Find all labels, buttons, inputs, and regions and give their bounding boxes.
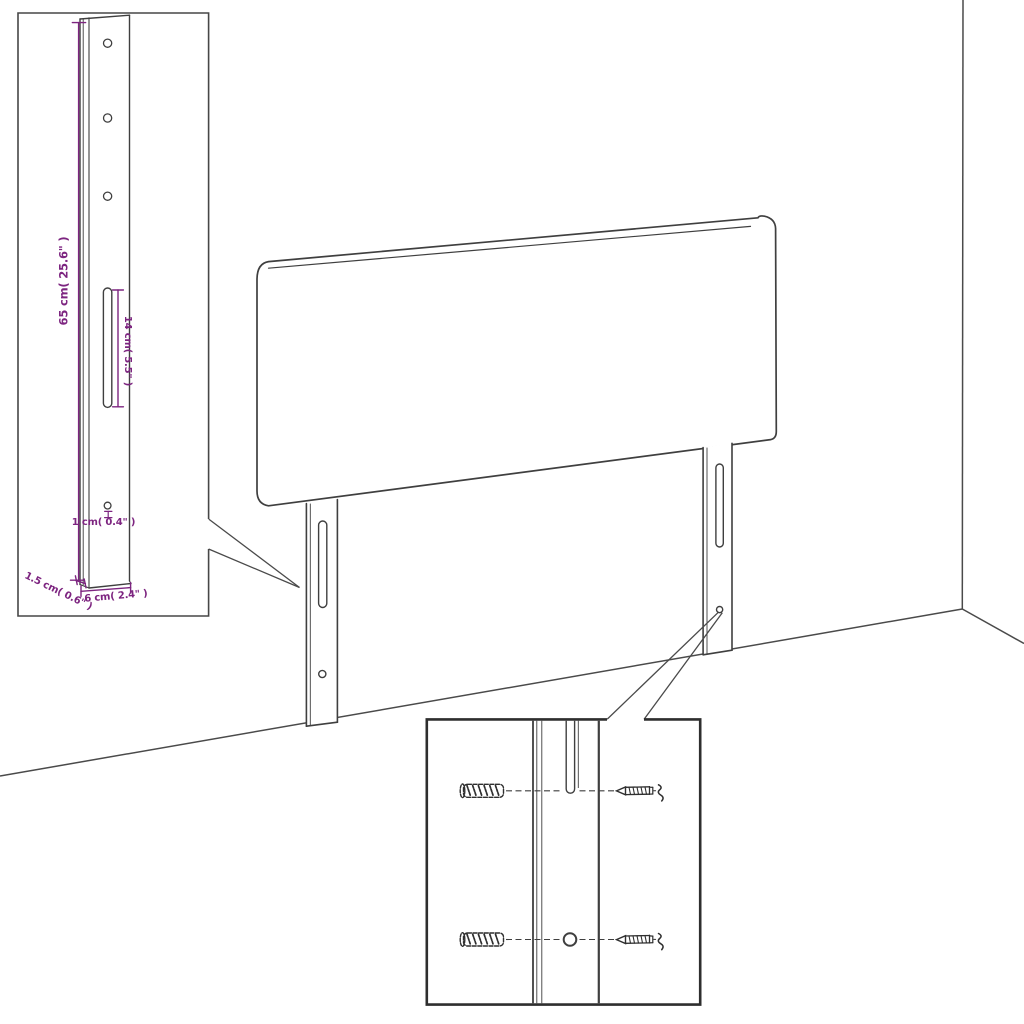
right-leg-slot <box>716 464 723 547</box>
floor-line-right <box>962 609 1024 644</box>
leg-detail-drawing <box>80 15 131 588</box>
hardware-detail-inset <box>427 719 700 1004</box>
dimension-label-slot-length: 14 cm( 5.5" ) <box>122 315 132 385</box>
dimension-label-leg-height: 65 cm( 25.6" ) <box>58 237 70 326</box>
callout-line <box>209 549 300 588</box>
left-leg-hole <box>319 670 326 677</box>
leg-detail-callout <box>209 519 300 588</box>
callout-line <box>644 613 722 720</box>
leg-slot <box>103 288 111 407</box>
headboard-panel <box>257 216 776 506</box>
line-art <box>0 0 1024 1024</box>
diagram-canvas: 65 cm( 25.6" ) 14 cm( 5.5" ) 1 cm( 0.4" … <box>0 0 1024 1024</box>
left-leg <box>306 500 338 727</box>
dimension-label-hole-diameter: 1 cm( 0.4" ) <box>72 518 135 528</box>
callout-line <box>209 519 300 588</box>
leg-hole <box>104 192 112 200</box>
leg-hole <box>104 114 112 122</box>
leg-hole <box>104 39 112 47</box>
right-leg-hole <box>717 607 723 613</box>
strip-hole <box>564 933 577 946</box>
wall-corner-line <box>962 0 963 609</box>
left-leg-slot <box>319 521 327 608</box>
inset-background <box>427 719 700 1004</box>
panel-outline <box>257 216 776 506</box>
leg-small-hole <box>104 502 111 509</box>
callout-line <box>607 613 718 720</box>
